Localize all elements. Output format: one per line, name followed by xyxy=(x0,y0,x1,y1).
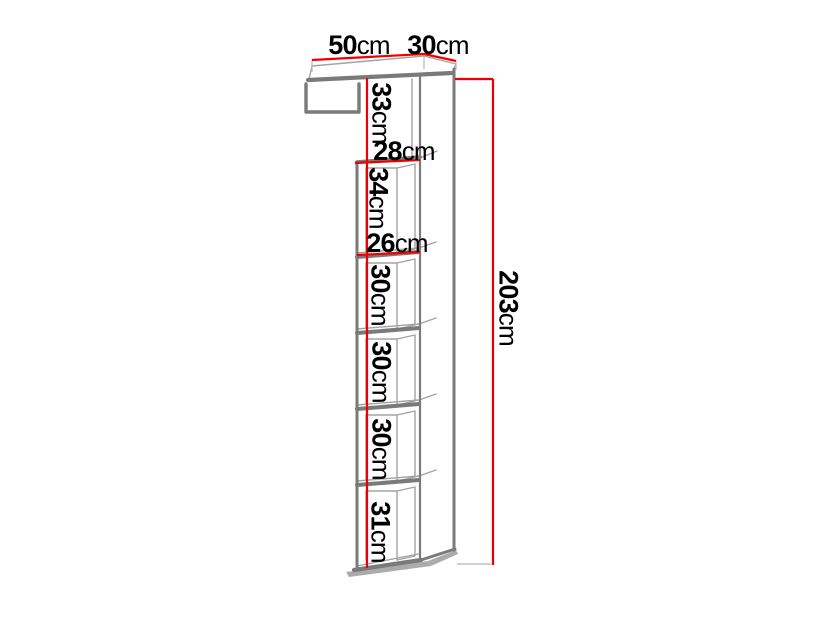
dim-label-top-offset-height: 33cm xyxy=(366,82,396,144)
dim-label-top-width: 50cm xyxy=(328,30,390,60)
diagram-page: 50cm 30cm 33cm 28cm 34cm 26cm 30cm 30cm xyxy=(0,0,826,620)
top-panel-front-edge xyxy=(308,73,452,80)
dim-label-compartment-4-height: 30cm xyxy=(366,418,396,480)
dim-label-compartment-2-height: 30cm xyxy=(365,264,395,326)
dim-label-inner-width: 26cm xyxy=(366,228,428,258)
dim-label-total-height: 203cm xyxy=(493,270,523,346)
dim-label-compartment-1-height: 34cm xyxy=(363,167,393,229)
dim-label-top-depth: 30cm xyxy=(407,30,469,60)
dim-label-compartment-5-height: 31cm xyxy=(365,501,395,563)
dim-label-compartment-3-height: 30cm xyxy=(366,341,396,403)
dim-label-outer-width: 28cm xyxy=(373,136,435,166)
wall-bracket xyxy=(306,84,359,112)
furniture-dimension-diagram: 50cm 30cm 33cm 28cm 34cm 26cm 30cm 30cm xyxy=(0,0,826,620)
